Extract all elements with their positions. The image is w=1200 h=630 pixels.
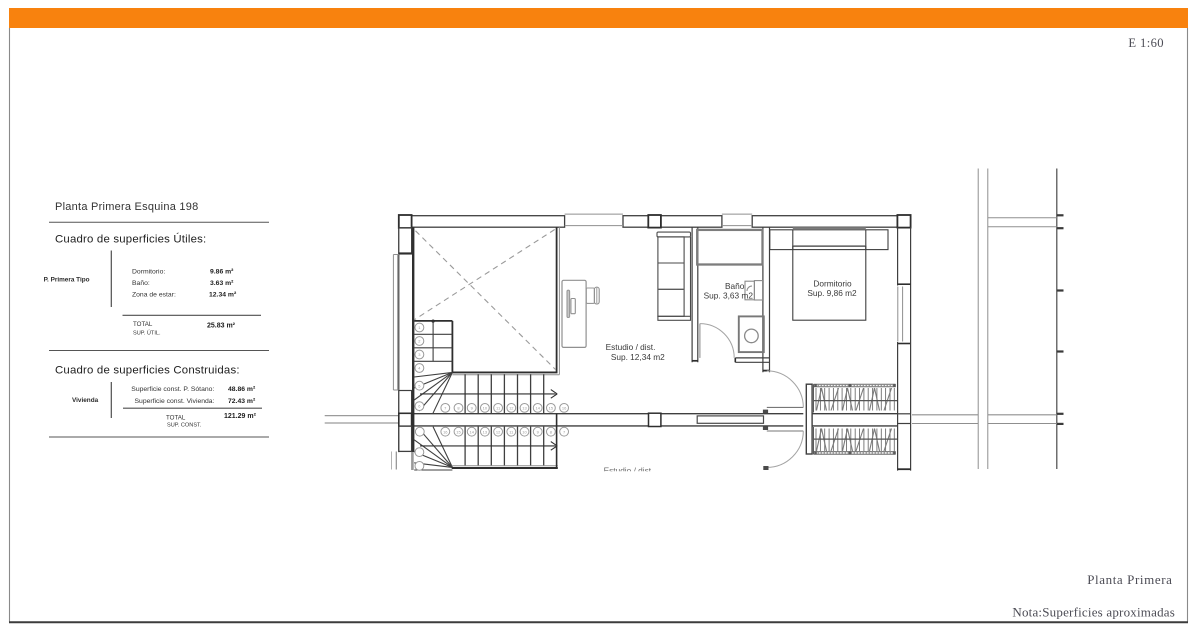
svg-text:Cuadro de superficies Construi: Cuadro de superficies Construidas: xyxy=(55,365,240,377)
svg-text:Vivienda: Vivienda xyxy=(72,397,99,404)
svg-text:12: 12 xyxy=(496,429,501,434)
svg-text:12: 12 xyxy=(509,406,514,411)
svg-text:Superficie const. P. Sótano:: Superficie const. P. Sótano: xyxy=(131,386,214,393)
svg-text:Baño:: Baño: xyxy=(132,280,150,287)
svg-text:Dormitorio: Dormitorio xyxy=(813,279,852,289)
svg-text:Planta Primera: Planta Primera xyxy=(1087,572,1172,587)
svg-text:TOTAL: TOTAL xyxy=(133,321,153,328)
svg-text:Superficie const. Vivienda:: Superficie const. Vivienda: xyxy=(135,398,215,405)
svg-text:SUP. CONST.: SUP. CONST. xyxy=(167,422,202,428)
svg-text:3.63 m²: 3.63 m² xyxy=(210,280,234,287)
svg-text:SUP. ÚTIL.: SUP. ÚTIL. xyxy=(133,329,161,336)
svg-text:Estudio / dist.: Estudio / dist. xyxy=(606,342,656,352)
svg-text:E 1:60: E 1:60 xyxy=(1128,36,1164,50)
svg-text:10: 10 xyxy=(522,429,527,434)
svg-text:Planta Primera Esquina 198: Planta Primera Esquina 198 xyxy=(55,201,198,213)
svg-text:15: 15 xyxy=(456,429,461,434)
svg-text:16: 16 xyxy=(562,406,567,411)
svg-text:Nota:Superficies aproximadas: Nota:Superficies aproximadas xyxy=(1012,605,1175,620)
svg-text:14: 14 xyxy=(535,406,540,411)
svg-text:72.43 m²: 72.43 m² xyxy=(228,398,256,405)
svg-text:Dormitorio:: Dormitorio: xyxy=(132,268,165,275)
svg-text:Zona de estar:: Zona de estar: xyxy=(132,291,176,298)
svg-text:16: 16 xyxy=(443,429,448,434)
svg-text:P. Primera Tipo: P. Primera Tipo xyxy=(44,276,90,283)
svg-text:Sup. 12,34 m2: Sup. 12,34 m2 xyxy=(611,352,665,362)
svg-text:Sup. 9,86 m2: Sup. 9,86 m2 xyxy=(807,288,857,298)
svg-text:9.86 m²: 9.86 m² xyxy=(210,268,234,275)
svg-text:48.86 m²: 48.86 m² xyxy=(228,386,256,393)
svg-text:15: 15 xyxy=(549,406,554,411)
svg-text:121.29 m²: 121.29 m² xyxy=(224,413,257,420)
svg-text:TOTAL: TOTAL xyxy=(166,414,186,421)
svg-text:13: 13 xyxy=(483,429,488,434)
svg-text:10: 10 xyxy=(483,406,488,411)
svg-text:12.34 m²: 12.34 m² xyxy=(209,291,237,298)
svg-text:Sup. 3,63 m2: Sup. 3,63 m2 xyxy=(704,290,754,300)
svg-text:25.83 m²: 25.83 m² xyxy=(207,322,236,329)
svg-text:14: 14 xyxy=(469,429,474,434)
svg-text:13: 13 xyxy=(522,406,527,411)
svg-text:Cuadro de superficies Útiles:: Cuadro de superficies Útiles: xyxy=(55,233,206,246)
